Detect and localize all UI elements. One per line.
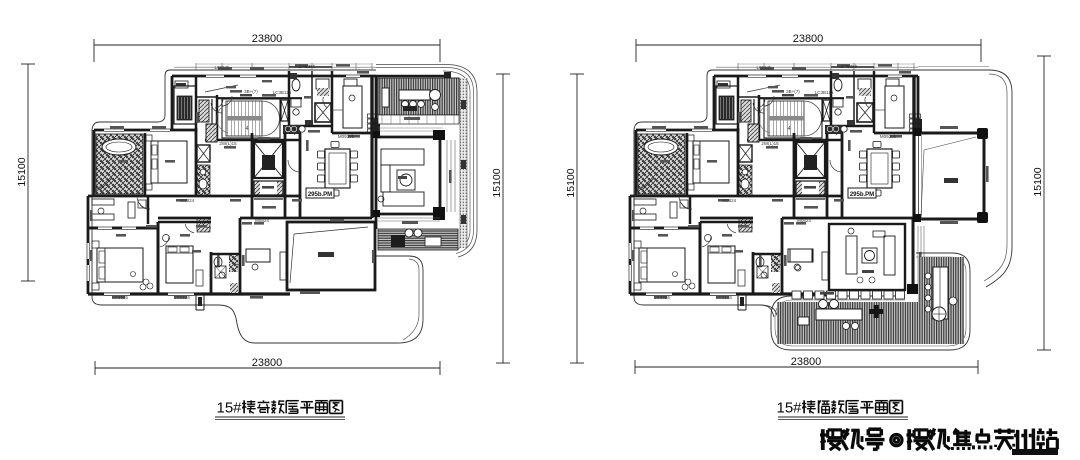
- svg-text:15#: 15#: [776, 400, 802, 417]
- svg-text:15#: 15#: [216, 400, 242, 417]
- svg-text:15100: 15100: [16, 157, 28, 186]
- svg-text:23800: 23800: [252, 357, 283, 369]
- svg-text:15100: 15100: [1032, 167, 1044, 196]
- svg-text:23800: 23800: [793, 33, 824, 45]
- svg-text:23800: 23800: [791, 356, 822, 368]
- svg-text:15100: 15100: [491, 168, 503, 197]
- svg-text:23800: 23800: [252, 33, 283, 45]
- svg-text:15100: 15100: [565, 168, 577, 197]
